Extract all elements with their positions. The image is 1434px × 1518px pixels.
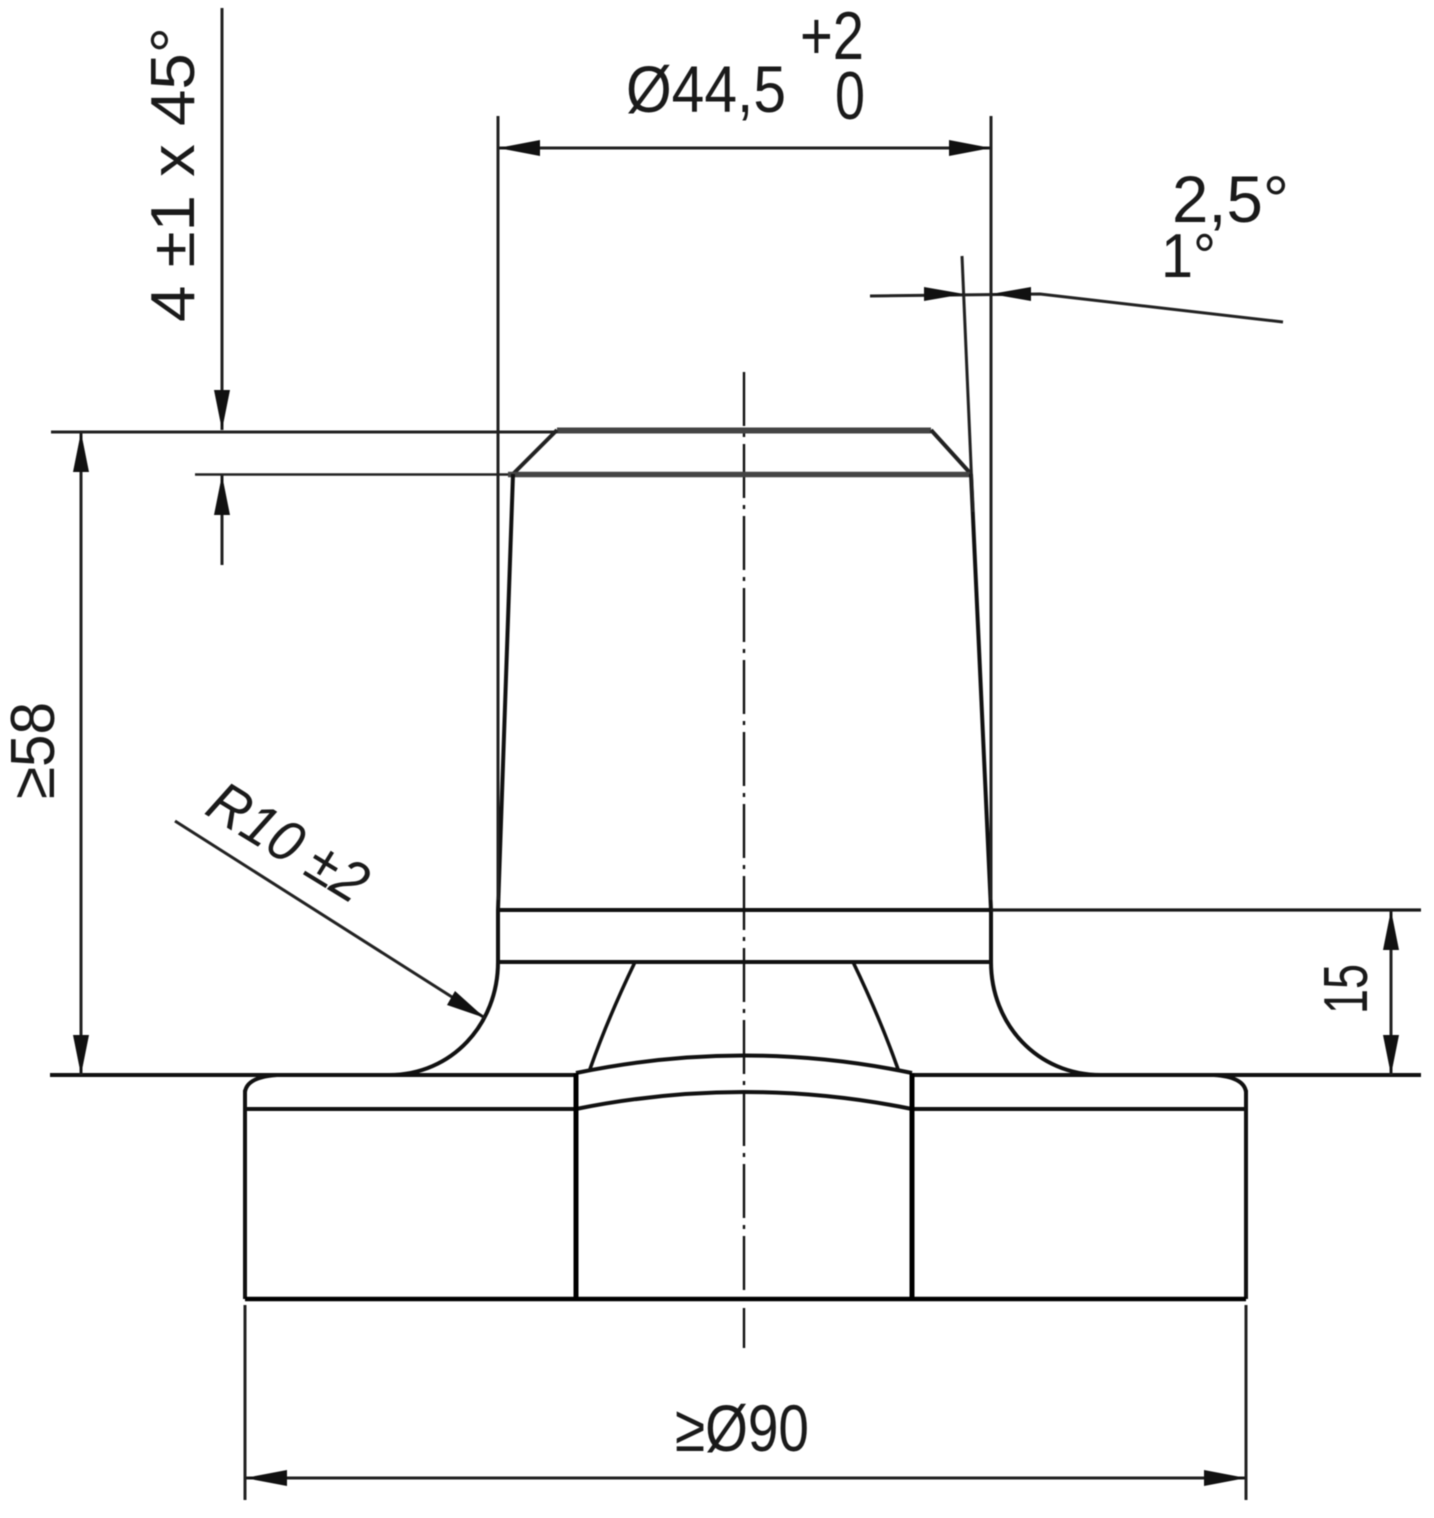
svg-text:Ø44,5: Ø44,5 — [626, 52, 786, 126]
svg-text:≥Ø90: ≥Ø90 — [675, 1391, 809, 1465]
svg-text:1°: 1° — [1161, 222, 1216, 291]
svg-text:0: 0 — [835, 58, 865, 134]
svg-text:15: 15 — [1312, 964, 1381, 1014]
svg-text:≥58: ≥58 — [0, 702, 68, 799]
svg-text:4 ±1 x 45°: 4 ±1 x 45° — [139, 27, 208, 322]
